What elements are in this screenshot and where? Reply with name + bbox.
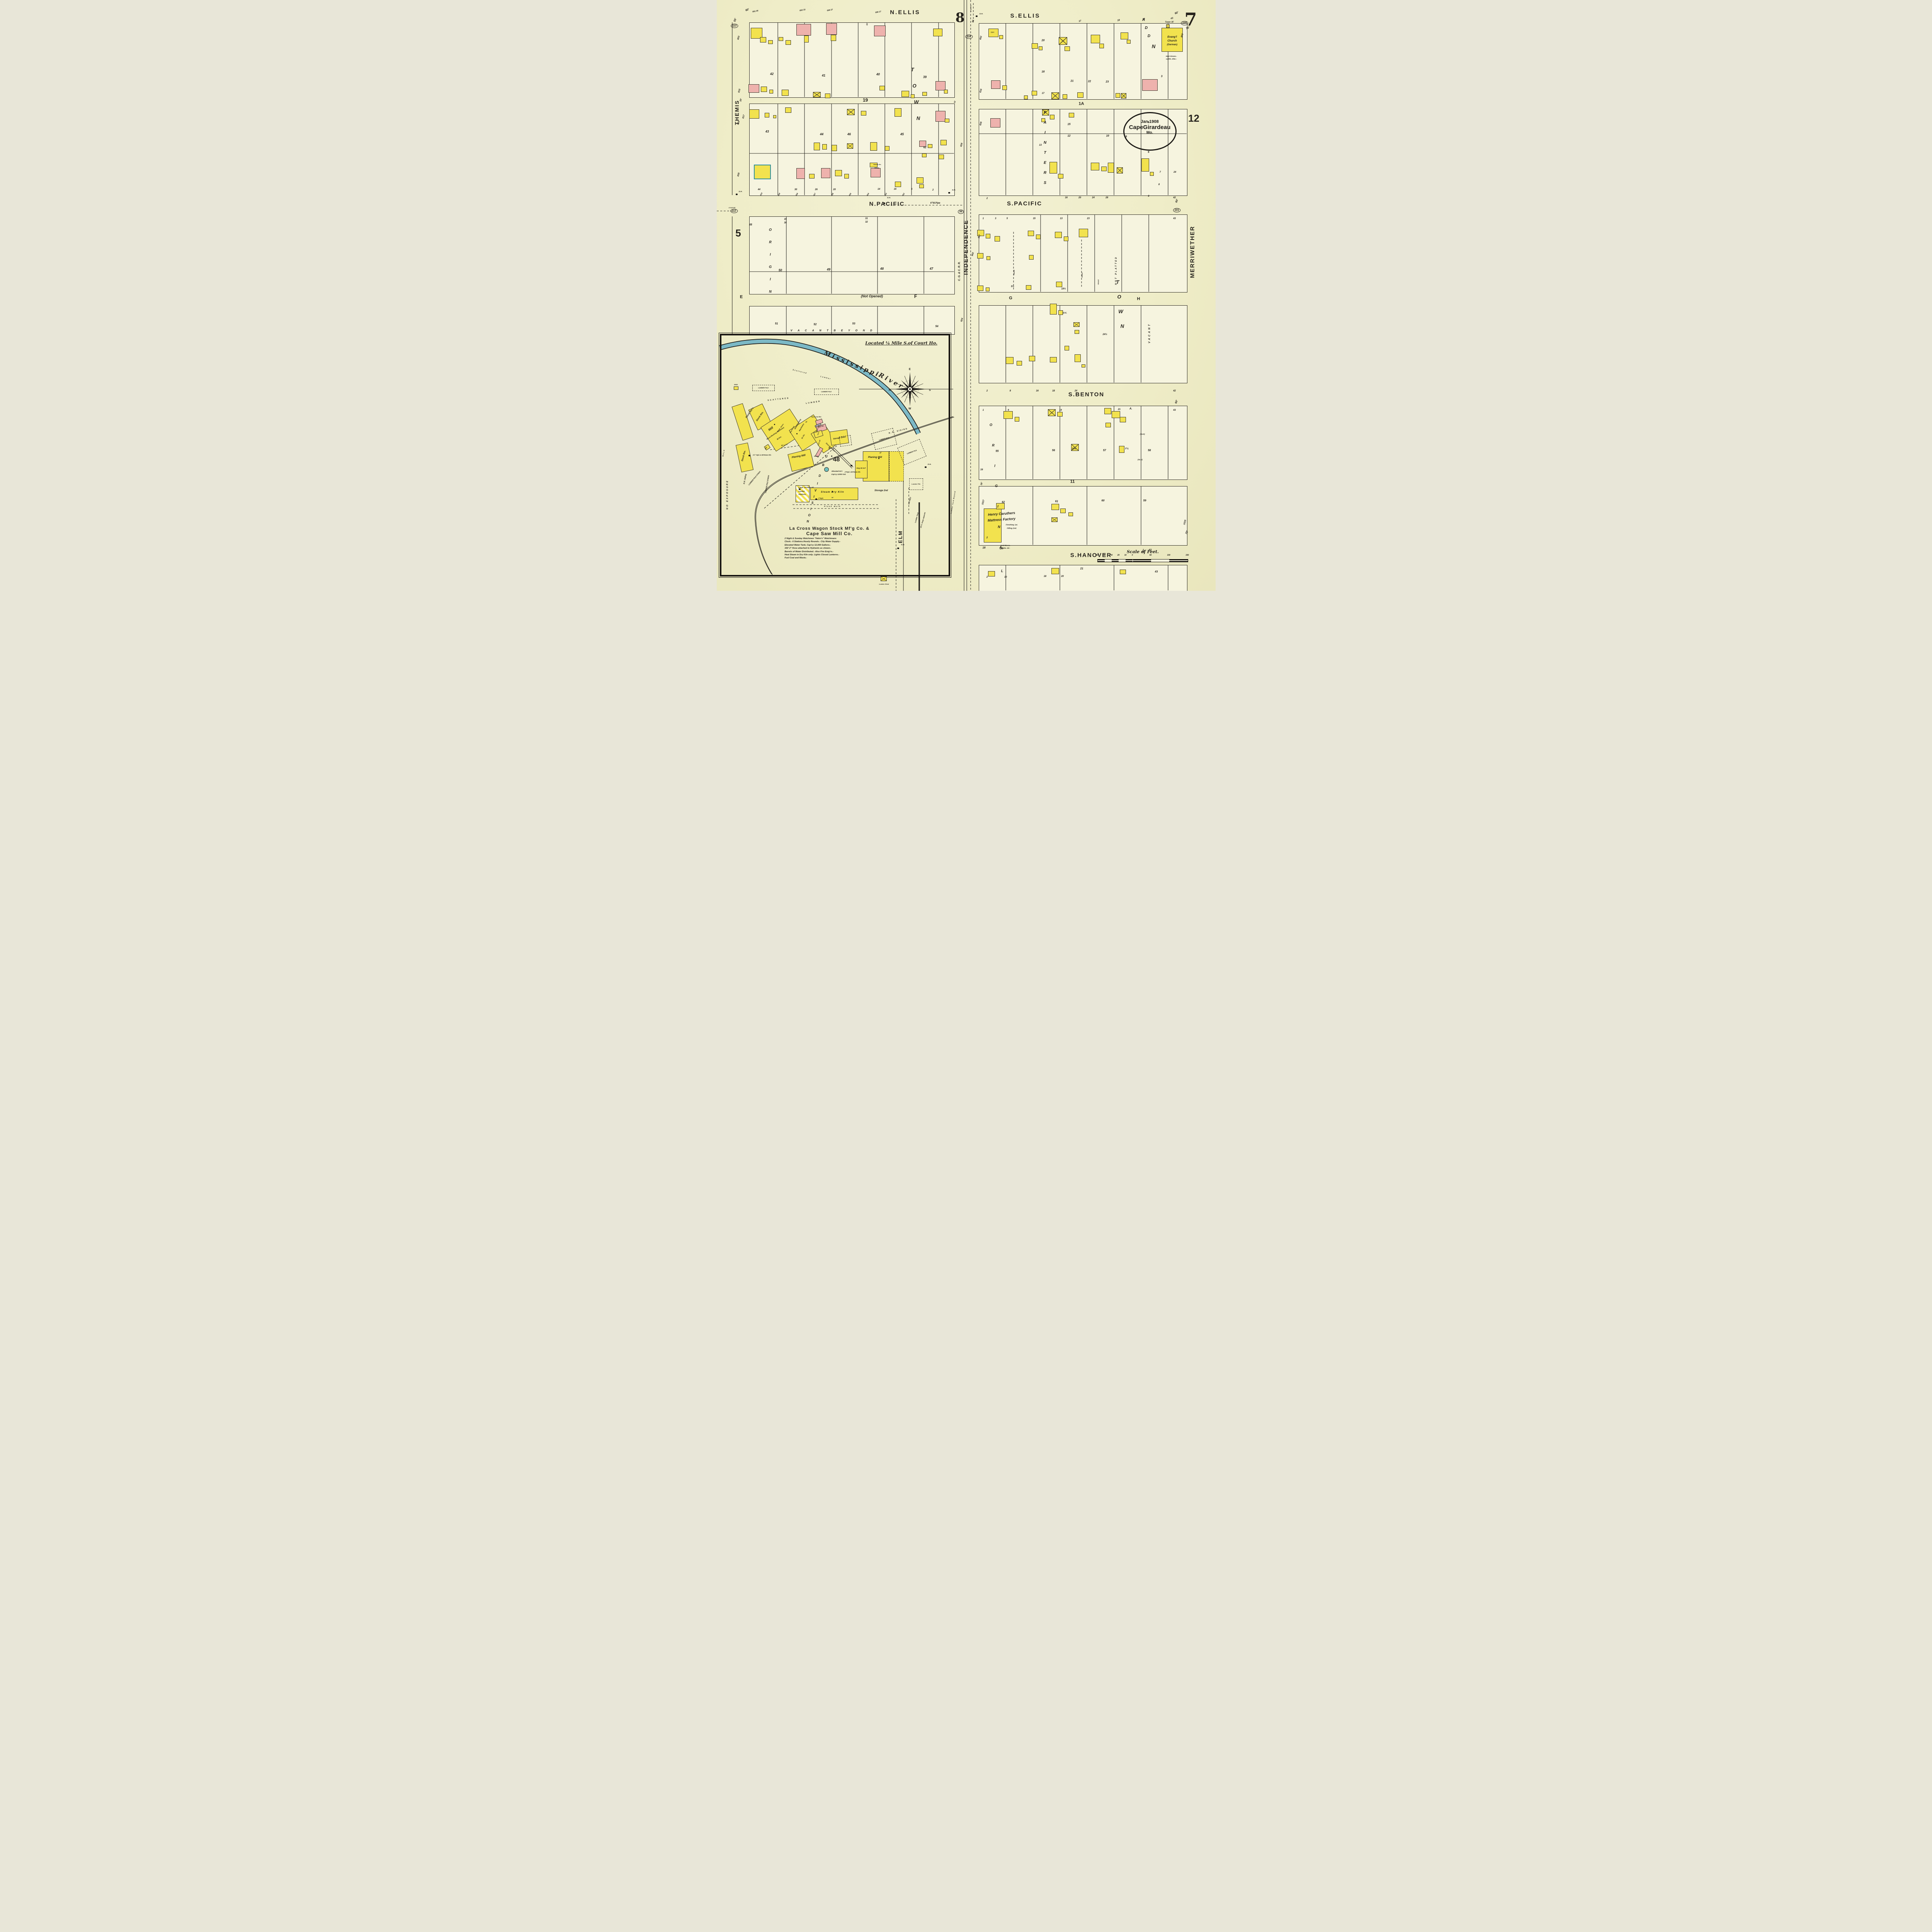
map-label: 62 [923,146,927,149]
hydrant-marker [883,202,885,204]
map-label: O [912,83,916,88]
map-label: 21 [1080,568,1083,570]
building-footprint [895,108,901,117]
map-label: 41 [822,74,825,77]
street-label-s-benton: S.BENTON [1068,392,1104,398]
map-label: 42 [1149,549,1152,552]
map-label: 60' [1174,11,1179,15]
city-block [979,305,1187,383]
building-footprint [1071,444,1079,451]
scale-tick-label: 10 [1124,554,1127,556]
map-label: 16 [894,188,896,190]
map-label: 44 [820,133,823,136]
block-number-1a: 1A [1078,102,1084,106]
map-label: 924 [960,318,963,322]
map-label: 1025 [1183,520,1187,525]
building-footprint [874,168,879,172]
map-label: 803 [737,36,740,40]
map-label: R [992,444,995,447]
map-label: 693 33 [799,9,806,12]
building-footprint [922,92,927,96]
building-footprint [831,35,836,41]
city-block [749,306,955,335]
building-footprint [1058,174,1063,179]
building-footprint [984,509,1002,543]
building-footprint [935,111,946,122]
title-date: Jan.1908 [1124,119,1175,124]
building-footprint [809,174,815,179]
map-label: 16 [1036,390,1039,392]
map-label: W [1118,309,1123,314]
map-label: F½ [1125,448,1129,450]
map-label: 20' [740,98,743,102]
map-label: 32 [865,221,868,223]
building-footprint [822,144,827,150]
scale-tick-label: 50 [1150,554,1152,556]
map-label: 21 [1071,80,1074,83]
map-label: 826 [979,121,982,126]
map-label: 113 [731,24,738,28]
map-label: E [1044,161,1046,165]
map-label: 1027 [981,500,985,505]
map-label: 60' [745,8,749,12]
map-label: 24½ [1103,333,1107,336]
building-footprint [861,111,866,116]
map-label: 60' [1175,199,1179,203]
building-footprint [761,87,767,92]
sawmill-note-title1: La Cross Wagon Stock Mf'g Co. & [782,526,878,531]
block-letter-h: H [1137,297,1140,301]
building-footprint [1117,167,1123,173]
building-footprint [1059,37,1067,45]
map-label: N [1044,141,1046,145]
building-footprint [1079,229,1088,237]
building-footprint [991,80,1000,89]
map-label: 6"W.P.PE [729,207,735,209]
map-label: 402 [902,193,905,197]
map-label: 112 [730,209,738,213]
hydrant-marker [976,15,978,17]
map-label: D.H. [980,13,983,15]
map-label: 410 [760,192,763,196]
map-label: 18 K. [1063,313,1067,315]
map-label: 44 [758,189,760,191]
building-footprint [1055,232,1062,238]
map-label: D.H. [952,189,956,191]
building-footprint [832,145,837,151]
map-label: VACANT [1148,323,1151,344]
building-footprint [1101,167,1107,171]
map-label: 24 [1092,197,1095,199]
map-label: 13 [1039,144,1042,146]
building-footprint [1024,95,1028,99]
map-label: 2 [986,576,988,578]
street-label-s-pacific: S.PACIFIC [1007,201,1042,207]
building-footprint [1065,46,1070,51]
building-footprint [754,165,771,179]
compass-rose-icon [893,372,927,406]
map-label: 46 [847,133,851,136]
map-label: 10 [1004,576,1007,578]
map-label: 12 [1068,135,1071,138]
map-label: 6"W.P.PE [970,5,972,12]
building-footprint [1120,417,1126,422]
building-footprint [1120,570,1126,574]
map-label: A [1142,18,1145,22]
building-footprint [1050,357,1057,362]
map-label: 54 [935,325,939,328]
building-footprint [844,174,849,179]
map-label: W [914,100,918,105]
building-footprint [1091,163,1099,170]
building-footprint [1064,236,1068,241]
building-footprint [919,184,924,188]
map-label: NOT PLATTED [1115,256,1117,285]
building-footprint [1065,346,1069,350]
sawmill-note-title2: Cape Saw Mill Co. [782,531,878,536]
building-footprint [1051,504,1059,510]
map-label: 17 [1078,20,1082,22]
map-label: T [1044,151,1046,155]
map-label: 3 [1161,75,1163,78]
building-footprint [1032,91,1037,95]
building-footprint [768,40,773,44]
map-label: 403 [884,193,888,197]
building-footprint [1116,93,1120,98]
map-label: 21 [1118,408,1121,411]
street-label-independence: INDEPENDENCE [963,219,969,275]
map-label: 5½ [1011,286,1014,288]
building-footprint [1051,517,1058,522]
building-footprint [995,236,1000,241]
map-label: 828 [960,143,963,147]
building-footprint [1057,412,1063,417]
building-footprint [1068,512,1073,516]
street-label-not-opened: (Not Opened) [861,295,883,298]
sawmill-note: La Cross Wagon Stock Mf'g Co. & Cape Saw… [782,526,878,560]
map-label: N [998,526,1000,529]
map-label: 45 [900,133,904,136]
map-label: 8 [1158,184,1160,186]
map-label: 8 [1148,195,1149,197]
sheet-number-7: 7 [1184,10,1197,28]
building-footprint [1051,92,1059,99]
map-label: 49 [827,268,830,271]
map-label: 39 [923,76,927,79]
map-label: 6 [1148,151,1150,154]
building-footprint [870,163,878,167]
sheet-number-8: 8 [956,11,965,24]
map-label: R [769,241,772,244]
building-footprint [847,109,855,115]
building-footprint [760,37,766,43]
building-footprint [1069,113,1074,117]
building-footprint [1121,32,1128,39]
building-footprint [917,177,923,184]
building-footprint [1026,285,1031,290]
church-label: Church [1167,40,1177,43]
building-footprint [814,143,820,150]
hydrant-marker [736,194,738,196]
map-label: 56 [972,20,975,23]
building-footprint [1141,158,1149,172]
map-label: 2 [932,189,934,191]
map-label: 7 [1160,171,1161,173]
building-footprint [986,287,990,291]
map-label: FENCE [1082,272,1083,278]
building-footprint [1036,235,1041,239]
map-label: 24 [1075,390,1077,392]
map-label: 105 [1181,21,1189,26]
map-label: 3 [995,218,996,220]
map-label: 42 [1173,390,1176,392]
map-label: 43 [1173,218,1176,220]
building-footprint [881,577,887,581]
street-label-themis: THEMIS [734,100,740,125]
map-label: 2 [986,390,988,392]
map-label: 10' [866,23,869,26]
building-footprint [847,143,853,149]
map-label: I [1044,131,1046,135]
map-label: 5 [1007,218,1008,220]
building-footprint [1142,79,1158,91]
building-footprint [977,253,983,259]
building-footprint [785,107,791,113]
map-label: 16 [980,469,983,471]
railroad-label: C. G. & C. R. R. [958,262,961,281]
map-label: N [1121,324,1124,329]
building-footprint [1073,322,1080,327]
map-label: A [999,546,1002,549]
map-label: 2 [986,537,988,539]
building-footprint [1032,43,1038,49]
building-footprint [901,91,909,97]
map-label: L [1001,570,1003,573]
map-label: I [994,464,995,468]
factory-label: Mattress Factory [987,517,1015,522]
map-label: 405 [849,193,852,197]
building-footprint [786,40,791,45]
building-footprint [990,118,1000,128]
map-label: 6"W.Pipe [930,202,940,204]
building-footprint [769,90,773,94]
city-block [979,486,1187,546]
map-label: 1 [983,218,984,220]
building-footprint [874,26,886,36]
building-footprint [1075,354,1081,362]
building-footprint [885,146,889,151]
map-label: 30 [794,189,797,191]
city-block [979,406,1187,480]
map-label: 99 [958,210,964,214]
map-label: 60' [1142,549,1146,553]
scale-tick-label: 100 [1167,554,1170,556]
building-footprint [1039,46,1043,50]
block-letter-f: F [914,294,917,299]
map-label: D.H. [887,197,891,199]
building-footprint [935,81,946,90]
building-footprint [1056,282,1062,287]
sheet-number-5: 5 [735,228,741,238]
building-footprint [1049,162,1057,173]
map-label: 20 [833,189,836,191]
map-label: 404 [866,193,870,197]
building-footprint [1017,361,1022,366]
map-label: 815 [738,88,741,93]
map-label: 816 [979,88,982,93]
map-label: 39 [784,218,787,221]
building-footprint [1077,92,1083,98]
building-footprint [1003,411,1013,419]
title-state: Mo. [1124,131,1175,135]
map-label: N [1152,44,1155,49]
map-label: 16' [980,482,983,485]
building-footprint [928,144,932,148]
map-label: 14 [878,188,880,190]
map-label: 694 27 [827,9,833,12]
building-footprint [779,37,783,41]
map-label: 407 [813,193,816,197]
building-footprint [1050,304,1057,315]
map-label: 817 [742,114,745,119]
building-footprint [977,286,983,291]
map-label: 48 [880,267,884,270]
building-footprint [922,153,927,157]
compass-rose [893,372,927,406]
building-footprint [1166,24,1170,28]
map-label: Heat Stoves.- [1166,56,1177,58]
building-footprint [919,141,926,147]
map-label: (OLD) [1140,434,1145,435]
building-footprint [988,571,995,577]
street-label-n-ellis: N.ELLIS [890,10,920,15]
building-footprint [749,109,759,119]
city-block [749,216,955,294]
map-label: FENCE [1014,270,1015,275]
map-label: 2 [986,197,988,200]
map-label: 26 [815,189,818,191]
map-label: 19 [1117,19,1120,22]
building-footprint [1060,509,1066,513]
map-label: 409 [777,193,781,197]
map-label: Tower 35' [1165,22,1174,24]
building-footprint [988,29,998,37]
map-label: 13 [1060,218,1063,220]
city-block [979,565,1187,591]
map-label: 907 [978,234,981,238]
map-label: T [911,67,914,72]
map-label: 50 [779,269,782,272]
building-footprint [835,170,842,176]
map-label: 56 [1052,449,1055,452]
map-label: 20 [1042,39,1045,42]
map-label: 116 [965,35,973,39]
factory-label: Henry Caruthers [988,511,1015,517]
map-label: 55 [996,450,999,453]
map-label: 406 [831,193,834,197]
map-label: A. [1129,408,1132,410]
map-label: 40 [876,73,880,76]
street-label-merriwether: MERRIWETHER [1189,226,1195,278]
city-block [979,214,1187,293]
map-label: O [769,228,772,232]
building-footprint [945,119,949,122]
map-label: 802 [979,36,982,40]
map-label: 23 [1106,81,1109,83]
map-label: 58 [1148,449,1151,452]
scale-tick-label: 20 [1117,554,1120,556]
city-block [979,23,1187,100]
map-label: Lights. Elec.- [1166,58,1177,60]
map-label: 15 [1068,123,1071,126]
building-footprint [1105,423,1111,427]
building-footprint [813,92,821,97]
map-label: A [1044,121,1046,125]
block-number-11: 11 [1070,480,1075,484]
map-label: 20 [1078,197,1081,199]
scale-tick-label: 50 [1096,554,1099,556]
map-label: 43 [1173,409,1176,412]
church-label: Evang'l [1167,36,1177,39]
map-label: (OLD) [1138,459,1143,461]
title-oval: Jan.1908 CapeGirardeau Mo. [1123,112,1177,151]
map-label: 18 [1042,71,1045,73]
building-footprint [940,140,947,145]
map-label: 60 [1102,500,1105,502]
scale-tick-label: 0 [1132,554,1133,556]
map-label: Lights. Oil.- [1001,548,1010,549]
map-label: 47 [930,267,933,270]
building-footprint [939,155,944,159]
map-label: I [770,253,771,257]
map-label: 53 [852,323,855,325]
map-label: 45 [749,224,752,226]
map-label: 802 [1180,33,1184,37]
map-label: G [769,265,772,269]
map-label: G [995,485,998,488]
map-label: 43 [1170,17,1173,20]
map-label: 9 [1008,409,1009,412]
map-label: 43 [765,130,769,133]
map-label: 20 [1000,548,1003,550]
building-footprint [1048,409,1056,416]
map-label: 18 [983,547,986,549]
map-label: 33 [1142,18,1145,20]
map-label: 691 45 [752,10,759,13]
map-label: 10 [1106,135,1109,138]
building-footprint [1029,255,1034,260]
map-label: 19 [1059,409,1062,412]
map-label: P [1044,111,1046,115]
building-footprint [933,29,942,36]
city-block [749,22,955,98]
scale-tick-label: 150 [1185,554,1189,556]
building-footprint [1051,568,1059,574]
building-footprint [1119,446,1124,453]
building-footprint [796,168,805,179]
map-label: 55' [733,18,737,22]
building-footprint [804,36,809,43]
map-label: N [917,116,920,121]
map-label: 825 [737,121,740,125]
building-footprint [1121,93,1126,99]
building-footprint [996,503,1005,509]
street-label-s-ellis: S.ELLIS [1010,13,1041,19]
block-letter-e: E [740,295,743,299]
scale-bar [1097,559,1188,562]
hydrant-marker [948,192,950,194]
building-footprint [1127,40,1131,44]
